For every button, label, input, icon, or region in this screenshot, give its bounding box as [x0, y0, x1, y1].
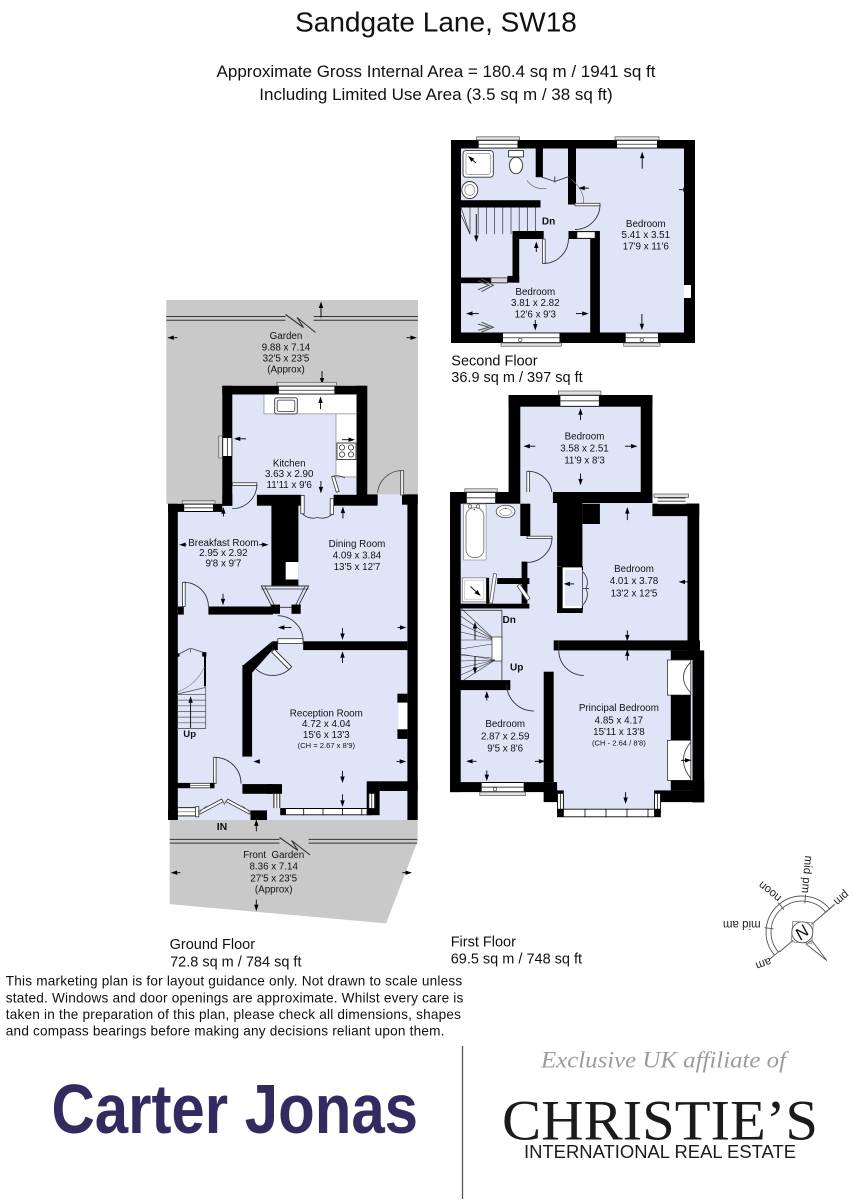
svg-text:(Approx): (Approx) [255, 885, 293, 896]
svg-text:2.95 x 2.92: 2.95 x 2.92 [199, 548, 247, 559]
svg-text:2.87 x 2.59: 2.87 x 2.59 [481, 731, 529, 742]
svg-text:Dn: Dn [503, 615, 516, 626]
svg-text:3.63 x 2.90: 3.63 x 2.90 [265, 469, 314, 480]
svg-text:and compass bearings before ma: and compass bearings before making any d… [6, 1024, 445, 1039]
svg-text:Including Limited Use Area (3.: Including Limited Use Area (3.5 sq m / 3… [259, 85, 612, 104]
svg-text:15'11 x 13'8: 15'11 x 13'8 [593, 727, 645, 738]
svg-text:11'11 x 9'6: 11'11 x 9'6 [267, 480, 313, 491]
svg-text:9'5 x 8'6: 9'5 x 8'6 [487, 743, 523, 754]
svg-text:17'9 x 11'6: 17'9 x 11'6 [623, 241, 670, 252]
svg-text:First Floor: First Floor [451, 935, 516, 951]
svg-text:Up: Up [510, 663, 523, 674]
svg-text:Dn: Dn [542, 216, 555, 227]
svg-text:Garden: Garden [270, 331, 303, 342]
svg-text:taken in the preparation of th: taken in the preparation of this plan, p… [6, 1007, 461, 1022]
svg-text:15'6 x 13'3: 15'6 x 13'3 [303, 730, 350, 741]
svg-text:Bedroom: Bedroom [515, 287, 555, 298]
svg-text:Sandgate Lane, SW18: Sandgate Lane, SW18 [295, 7, 577, 38]
svg-text:72.8 sq m / 784 sq ft: 72.8 sq m / 784 sq ft [170, 954, 301, 970]
svg-text:Bedroom: Bedroom [626, 219, 666, 230]
svg-text:Bedroom: Bedroom [565, 432, 605, 443]
svg-text:(Approx): (Approx) [267, 365, 305, 376]
svg-text:Bedroom: Bedroom [485, 719, 525, 730]
svg-text:INTERNATIONAL REAL ESTATE: INTERNATIONAL REAL ESTATE [524, 1142, 796, 1162]
svg-text:Ground Floor: Ground Floor [170, 937, 256, 953]
svg-text:(CH = 2.67 x 8'9): (CH = 2.67 x 8'9) [298, 741, 356, 750]
svg-text:Approximate Gross Internal Are: Approximate Gross Internal Area = 180.4 … [217, 62, 656, 81]
svg-text:5.41 x 3.51: 5.41 x 3.51 [622, 230, 670, 241]
svg-text:Dining Room: Dining Room [329, 539, 386, 550]
svg-text:4.09 x 3.84: 4.09 x 3.84 [333, 551, 382, 562]
svg-text:13'5 x 12'7: 13'5 x 12'7 [334, 562, 381, 573]
svg-text:4.72 x 4.04: 4.72 x 4.04 [302, 719, 351, 730]
svg-text:69.5 sq m / 748 sq ft: 69.5 sq m / 748 sq ft [451, 952, 582, 968]
svg-text:3.58 x 2.51: 3.58 x 2.51 [560, 444, 608, 455]
svg-text:4.85 x 4.17: 4.85 x 4.17 [595, 716, 643, 727]
svg-text:32'5 x 23'5: 32'5 x 23'5 [263, 354, 310, 365]
svg-text:Reception Room: Reception Room [290, 708, 363, 719]
svg-text:Up: Up [183, 729, 196, 740]
svg-text:9.88 x 7.14: 9.88 x 7.14 [262, 343, 311, 354]
svg-text:Exclusive UK affiliate of: Exclusive UK affiliate of [540, 1048, 790, 1074]
svg-text:IN: IN [217, 821, 228, 833]
svg-text:36.9 sq m / 397 sq ft: 36.9 sq m / 397 sq ft [451, 370, 582, 386]
svg-text:8.36 x 7.14: 8.36 x 7.14 [249, 862, 298, 873]
svg-text:mid am: mid am [723, 918, 761, 930]
svg-text:13'2 x 12'5: 13'2 x 12'5 [611, 588, 658, 599]
svg-text:This marketing plan is for lay: This marketing plan is for layout guidan… [6, 974, 463, 989]
svg-text:Front Garden: Front Garden [243, 850, 304, 861]
svg-text:Principal Bedroom: Principal Bedroom [579, 703, 659, 714]
svg-text:4.01 x 3.78: 4.01 x 3.78 [610, 576, 659, 587]
svg-text:11'9 x 8'3: 11'9 x 8'3 [564, 455, 605, 466]
svg-text:27'5 x 23'5: 27'5 x 23'5 [250, 873, 297, 884]
svg-text:(CH - 2.64 / 8'8): (CH - 2.64 / 8'8) [592, 738, 646, 747]
svg-text:12'6 x 9'3: 12'6 x 9'3 [515, 310, 557, 321]
svg-text:9'8 x 9'7: 9'8 x 9'7 [205, 559, 241, 570]
svg-text:Second Floor: Second Floor [451, 353, 537, 369]
svg-text:3.81 x 2.82: 3.81 x 2.82 [511, 298, 559, 309]
svg-text:Bedroom: Bedroom [614, 564, 654, 575]
svg-text:Carter Jonas: Carter Jonas [52, 1070, 419, 1148]
svg-text:stated. Windows and door openi: stated. Windows and door openings are ap… [6, 990, 464, 1005]
